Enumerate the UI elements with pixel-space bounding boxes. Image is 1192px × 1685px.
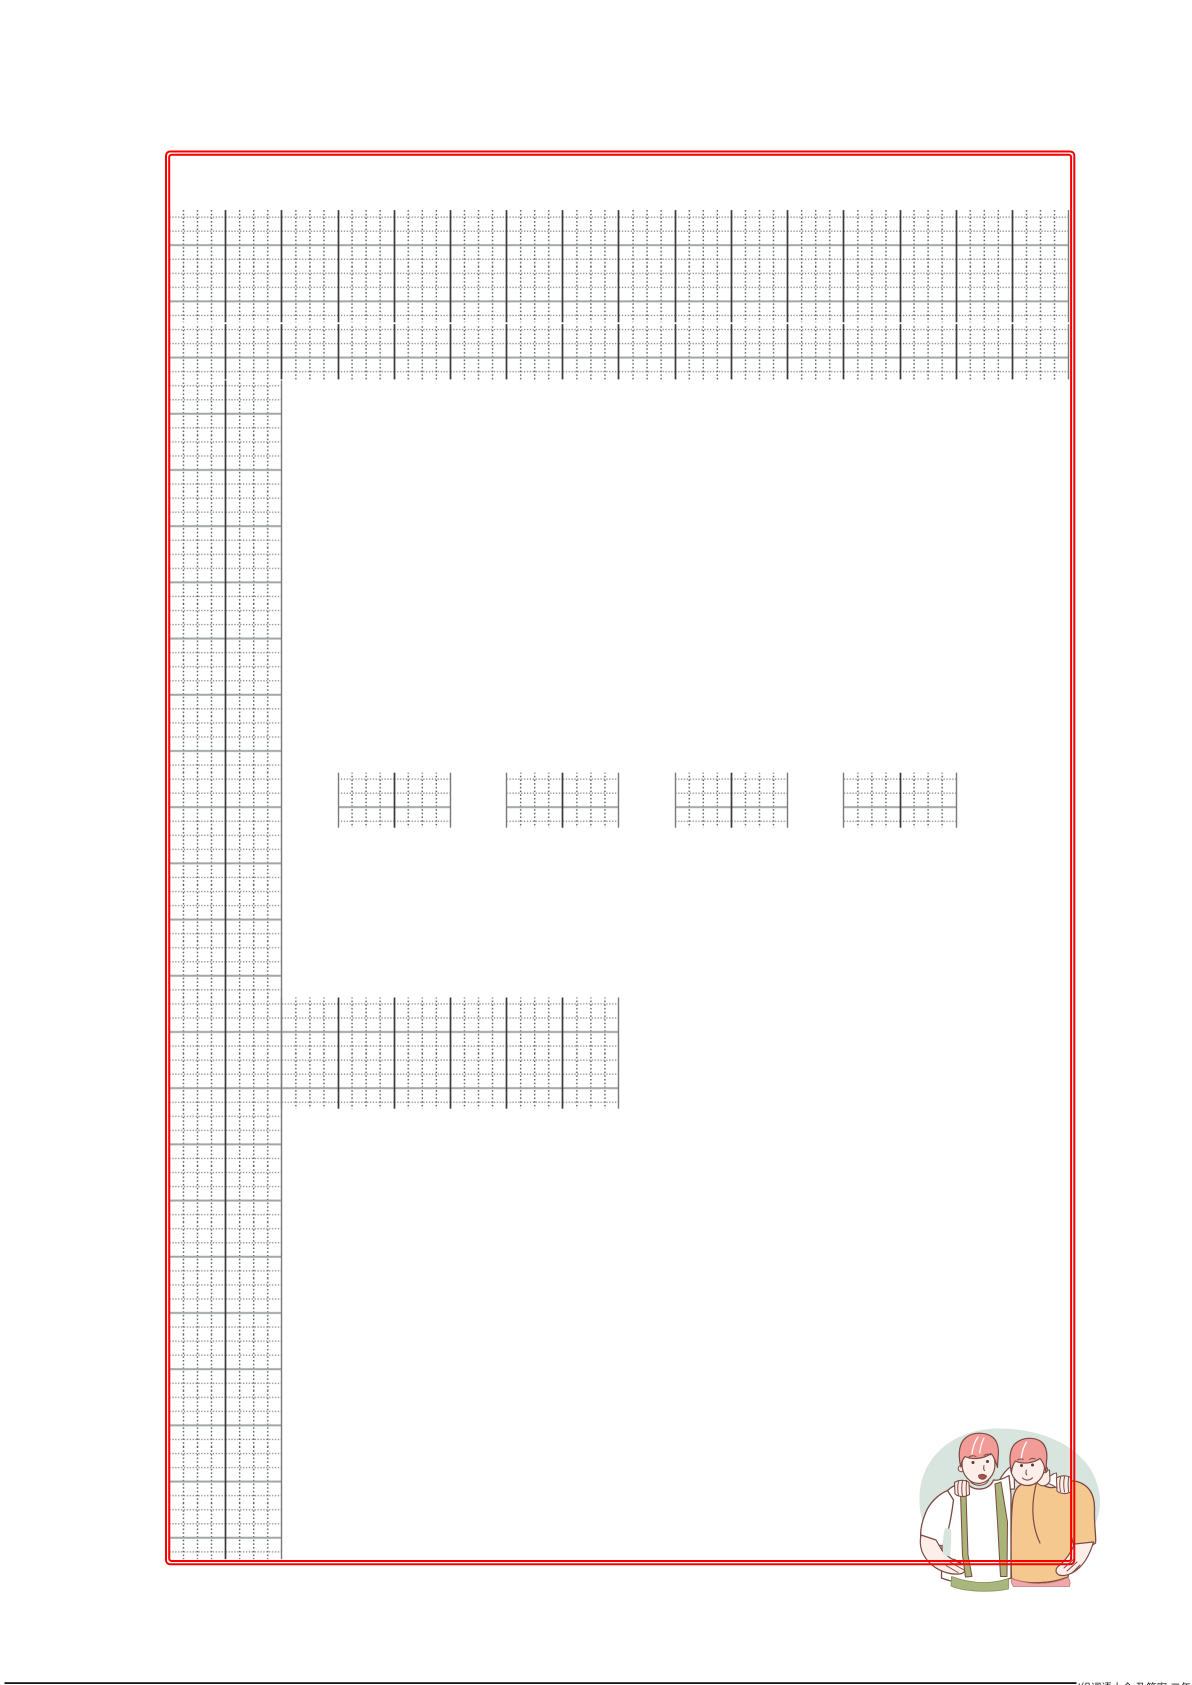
svg-text:l组词语大全 及答案 二年级下册语文: l组词语大全 及答案 二年级下册语文: [1078, 1681, 1192, 1685]
